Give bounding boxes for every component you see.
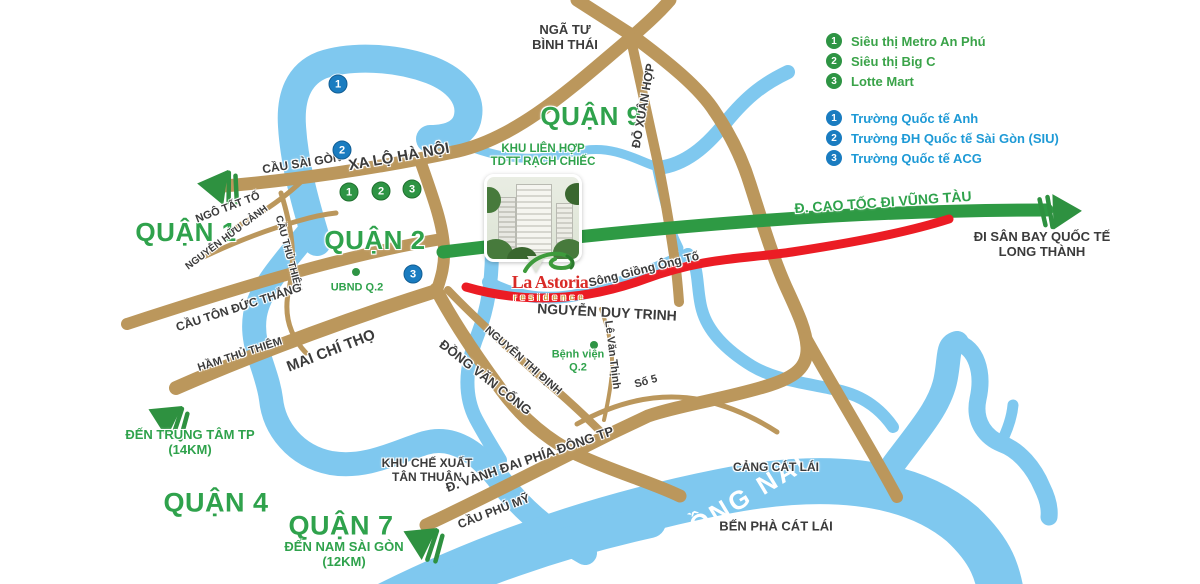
label-di-san-bay: ĐI SÂN BAY QUỐC TẾ LONG THÀNH (974, 230, 1111, 260)
legend-marker-icon: 3 (826, 150, 842, 166)
road-mai-chi-tho (176, 291, 436, 388)
marker-school-3: 3 (404, 265, 423, 284)
label-cang-cat-lai: CẢNG CÁT LÁI (733, 461, 819, 475)
legend-item-label: Trường Quốc tế ACG (851, 151, 982, 166)
legend-item-label: Lotte Mart (851, 74, 914, 89)
legend-group-supermarkets: 1 Siêu thị Metro An Phú 2 Siêu thị Big C… (826, 33, 1059, 89)
legend-item: 1 Siêu thị Metro An Phú (826, 33, 1059, 49)
project-logo: La Astoria residence (505, 248, 595, 302)
label-khu-lien-hop: KHU LIÊN HỢP TDTT RẠCH CHIẾC (491, 143, 596, 169)
tree-icon (565, 183, 582, 205)
legend-item: 2 Trường ĐH Quốc tế Sài Gòn (SIU) (826, 130, 1059, 146)
legend-marker-icon: 1 (826, 33, 842, 49)
project-name: La Astoria (505, 272, 595, 293)
legend: 1 Siêu thị Metro An Phú 2 Siêu thị Big C… (826, 33, 1059, 187)
map-canvas: La Astoria residence QUẬN 9 QUẬN 1 QUẬN … (0, 0, 1200, 584)
label-district-quan-7: QUẬN 7 (288, 510, 393, 541)
legend-item-label: Siêu thị Big C (851, 54, 936, 69)
legend-item: 3 Lotte Mart (826, 73, 1059, 89)
legend-marker-icon: 2 (826, 130, 842, 146)
marker-school-1: 1 (329, 75, 348, 94)
legend-item-label: Siêu thị Metro An Phú (851, 34, 986, 49)
label-nga-tu-binh-thai: NGÃ TƯ BÌNH THÁI (532, 23, 598, 53)
label-district-quan-4: QUẬN 4 (163, 487, 268, 518)
marker-supermarket-2: 2 (372, 182, 391, 201)
legend-item: 2 Siêu thị Big C (826, 53, 1059, 69)
legend-item-label: Trường ĐH Quốc tế Sài Gòn (SIU) (851, 131, 1059, 146)
legend-item: 1 Trường Quốc tế Anh (826, 110, 1059, 126)
river-spur (1001, 405, 1013, 443)
label-den-nam-sai-gon: ĐẾN NAM SÀI GÒN (12KM) (284, 540, 403, 570)
label-benh-vien-q2: Bệnh viện Q.2 (552, 348, 605, 373)
ribbon-swirl-icon (521, 248, 579, 274)
legend-item-label: Trường Quốc tế Anh (851, 111, 978, 126)
legend-marker-icon: 1 (826, 110, 842, 126)
label-ubnd-q2: UBND Q.2 (331, 282, 384, 295)
legend-marker-icon: 2 (826, 53, 842, 69)
ubnd-q2-dot (352, 268, 360, 276)
label-district-quan-9: QUẬN 9 (540, 102, 641, 132)
building-tower-icon (516, 184, 551, 253)
legend-marker-icon: 3 (826, 73, 842, 89)
label-ben-pha-cat-lai: BẾN PHÀ CÁT LÁI (719, 520, 832, 535)
marker-school-2: 2 (333, 141, 352, 160)
marker-supermarket-1: 1 (340, 183, 359, 202)
marker-supermarket-3: 3 (403, 180, 422, 199)
legend-item: 3 Trường Quốc tế ACG (826, 150, 1059, 166)
river-branch-north (893, 343, 957, 465)
label-district-quan-2: QUẬN 2 (324, 226, 425, 256)
legend-group-schools: 1 Trường Quốc tế Anh 2 Trường ĐH Quốc tế… (826, 110, 1059, 166)
label-den-trung-tam-tp: ĐẾN TRUNG TÂM TP (14KM) (125, 428, 254, 458)
